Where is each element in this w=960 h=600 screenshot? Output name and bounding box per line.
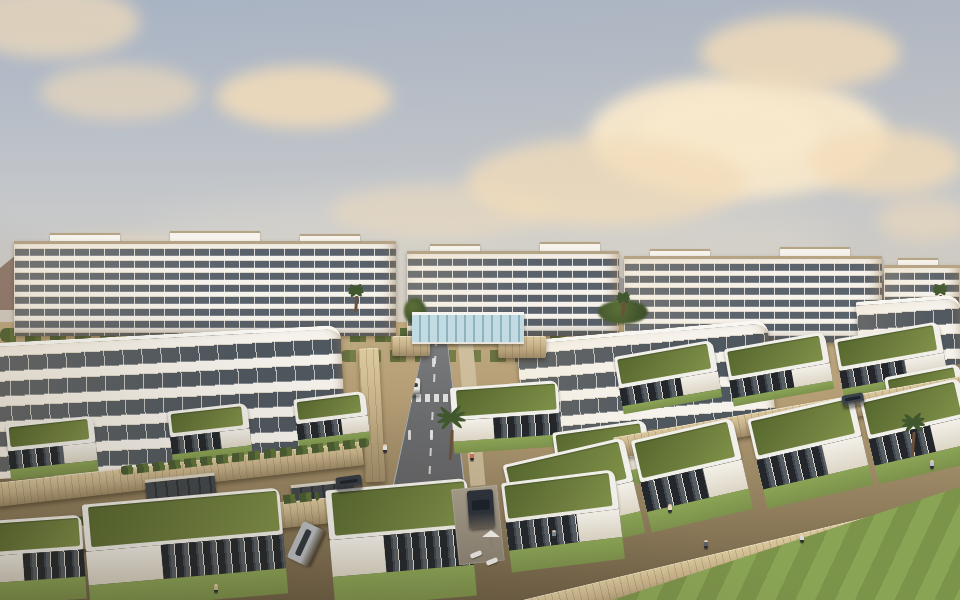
cloud: [810, 130, 960, 194]
palm-trunk: [621, 302, 624, 316]
villa-hero: [82, 488, 288, 600]
lane-arrow: [432, 358, 435, 367]
cloud: [40, 64, 200, 120]
person: [470, 452, 474, 461]
architectural-render: [0, 0, 960, 600]
person: [668, 504, 672, 513]
person: [800, 534, 804, 543]
parked-suv: [467, 489, 496, 529]
villa: [5, 416, 98, 481]
palm-tree: [614, 294, 632, 316]
palm-trunk: [449, 430, 454, 460]
lane-arrow: [408, 430, 411, 440]
car-windshield: [339, 478, 358, 484]
glass-pool-bridge: [412, 312, 524, 344]
person: [704, 540, 708, 549]
villa: [0, 515, 87, 600]
apartment-block-left: [14, 241, 396, 336]
villa-side-wall: [0, 554, 25, 583]
cloud: [330, 184, 550, 238]
parasol-pole: [490, 538, 492, 547]
person: [383, 444, 387, 453]
parasol: [482, 530, 500, 548]
palm-tree: [898, 418, 928, 456]
person: [214, 584, 218, 593]
villa-side-wall: [329, 535, 386, 577]
cloud: [700, 16, 900, 90]
villa: [501, 469, 625, 572]
palm-trunk: [911, 432, 915, 456]
person: [930, 460, 934, 469]
palm-tree: [346, 286, 367, 312]
car-windshield: [295, 529, 313, 558]
villa-glass-doors: [23, 550, 85, 581]
palm-trunk: [355, 296, 359, 312]
palm-tree: [432, 412, 470, 460]
person: [552, 530, 556, 539]
car-windshield: [471, 499, 490, 510]
car-windshield: [845, 396, 861, 402]
cloud: [878, 198, 960, 242]
cloud: [216, 66, 392, 128]
